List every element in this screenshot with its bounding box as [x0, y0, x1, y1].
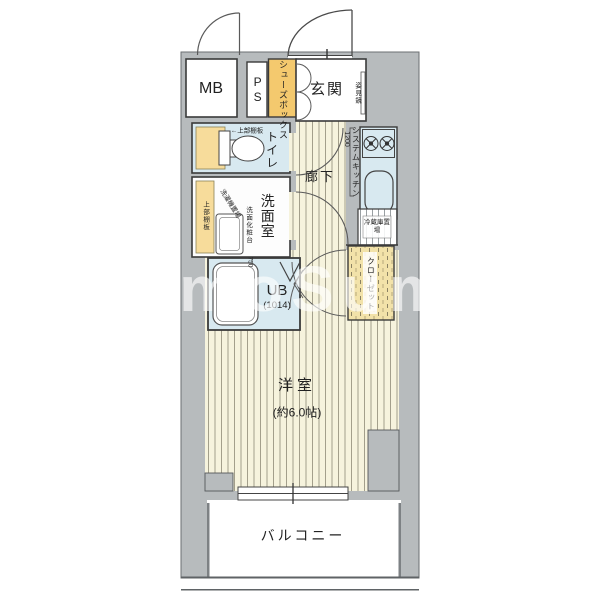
mb-label: MB: [199, 80, 223, 98]
vanity-label: 洗面化粧台: [244, 206, 251, 244]
shoebox-label: シューズボックス: [277, 60, 289, 116]
fridge-label: 冷蔵庫置場: [364, 219, 391, 235]
living-room-size-label: (約6.0帖): [273, 406, 322, 419]
washroom-door-opening: [289, 192, 297, 240]
pillar-bottom-left: [205, 473, 233, 491]
toilet-door-opening: [289, 133, 297, 171]
sink: [365, 171, 393, 213]
balcony-outer-line: [181, 589, 419, 591]
kitchen-size-label: 1200: [342, 131, 350, 147]
mirror-fixture: [361, 72, 365, 114]
mb-door-arc: [198, 13, 240, 55]
kitchen-label: システムキッチン: [351, 126, 360, 198]
toilet-label: トイレ: [264, 131, 277, 170]
living-room-label: 洋室: [278, 378, 316, 395]
balcony-rail-line: [181, 577, 419, 579]
toilet-shelf-note-label: ←上部棚板: [231, 127, 264, 134]
hallway-label: 廊下: [305, 170, 335, 184]
washer-pan: [216, 214, 243, 254]
genkan-label: 玄関: [310, 82, 344, 99]
hallway-floor: [296, 120, 346, 258]
ps-label: PS: [250, 75, 263, 105]
washroom-shelf-label: 上部棚板: [201, 201, 208, 231]
mirror-label: 姿見鏡: [353, 82, 360, 105]
watermark: umoSumo: [132, 252, 501, 326]
washroom-label: 洗面室: [259, 194, 274, 239]
balcony-wall-left: [207, 503, 210, 578]
kitchen-counter: [360, 127, 397, 219]
balcony-wall-right: [399, 503, 402, 578]
pillar-bottom-right: [368, 430, 399, 491]
entrance-door-arc: [288, 10, 352, 57]
floorplan: MB PS シューズボックス 玄関 姿見鏡 ←上部棚板 トイレ 上部棚板 洗濯機…: [0, 0, 600, 600]
balcony-label: バルコニー: [261, 528, 346, 543]
balcony-area: [181, 500, 419, 591]
